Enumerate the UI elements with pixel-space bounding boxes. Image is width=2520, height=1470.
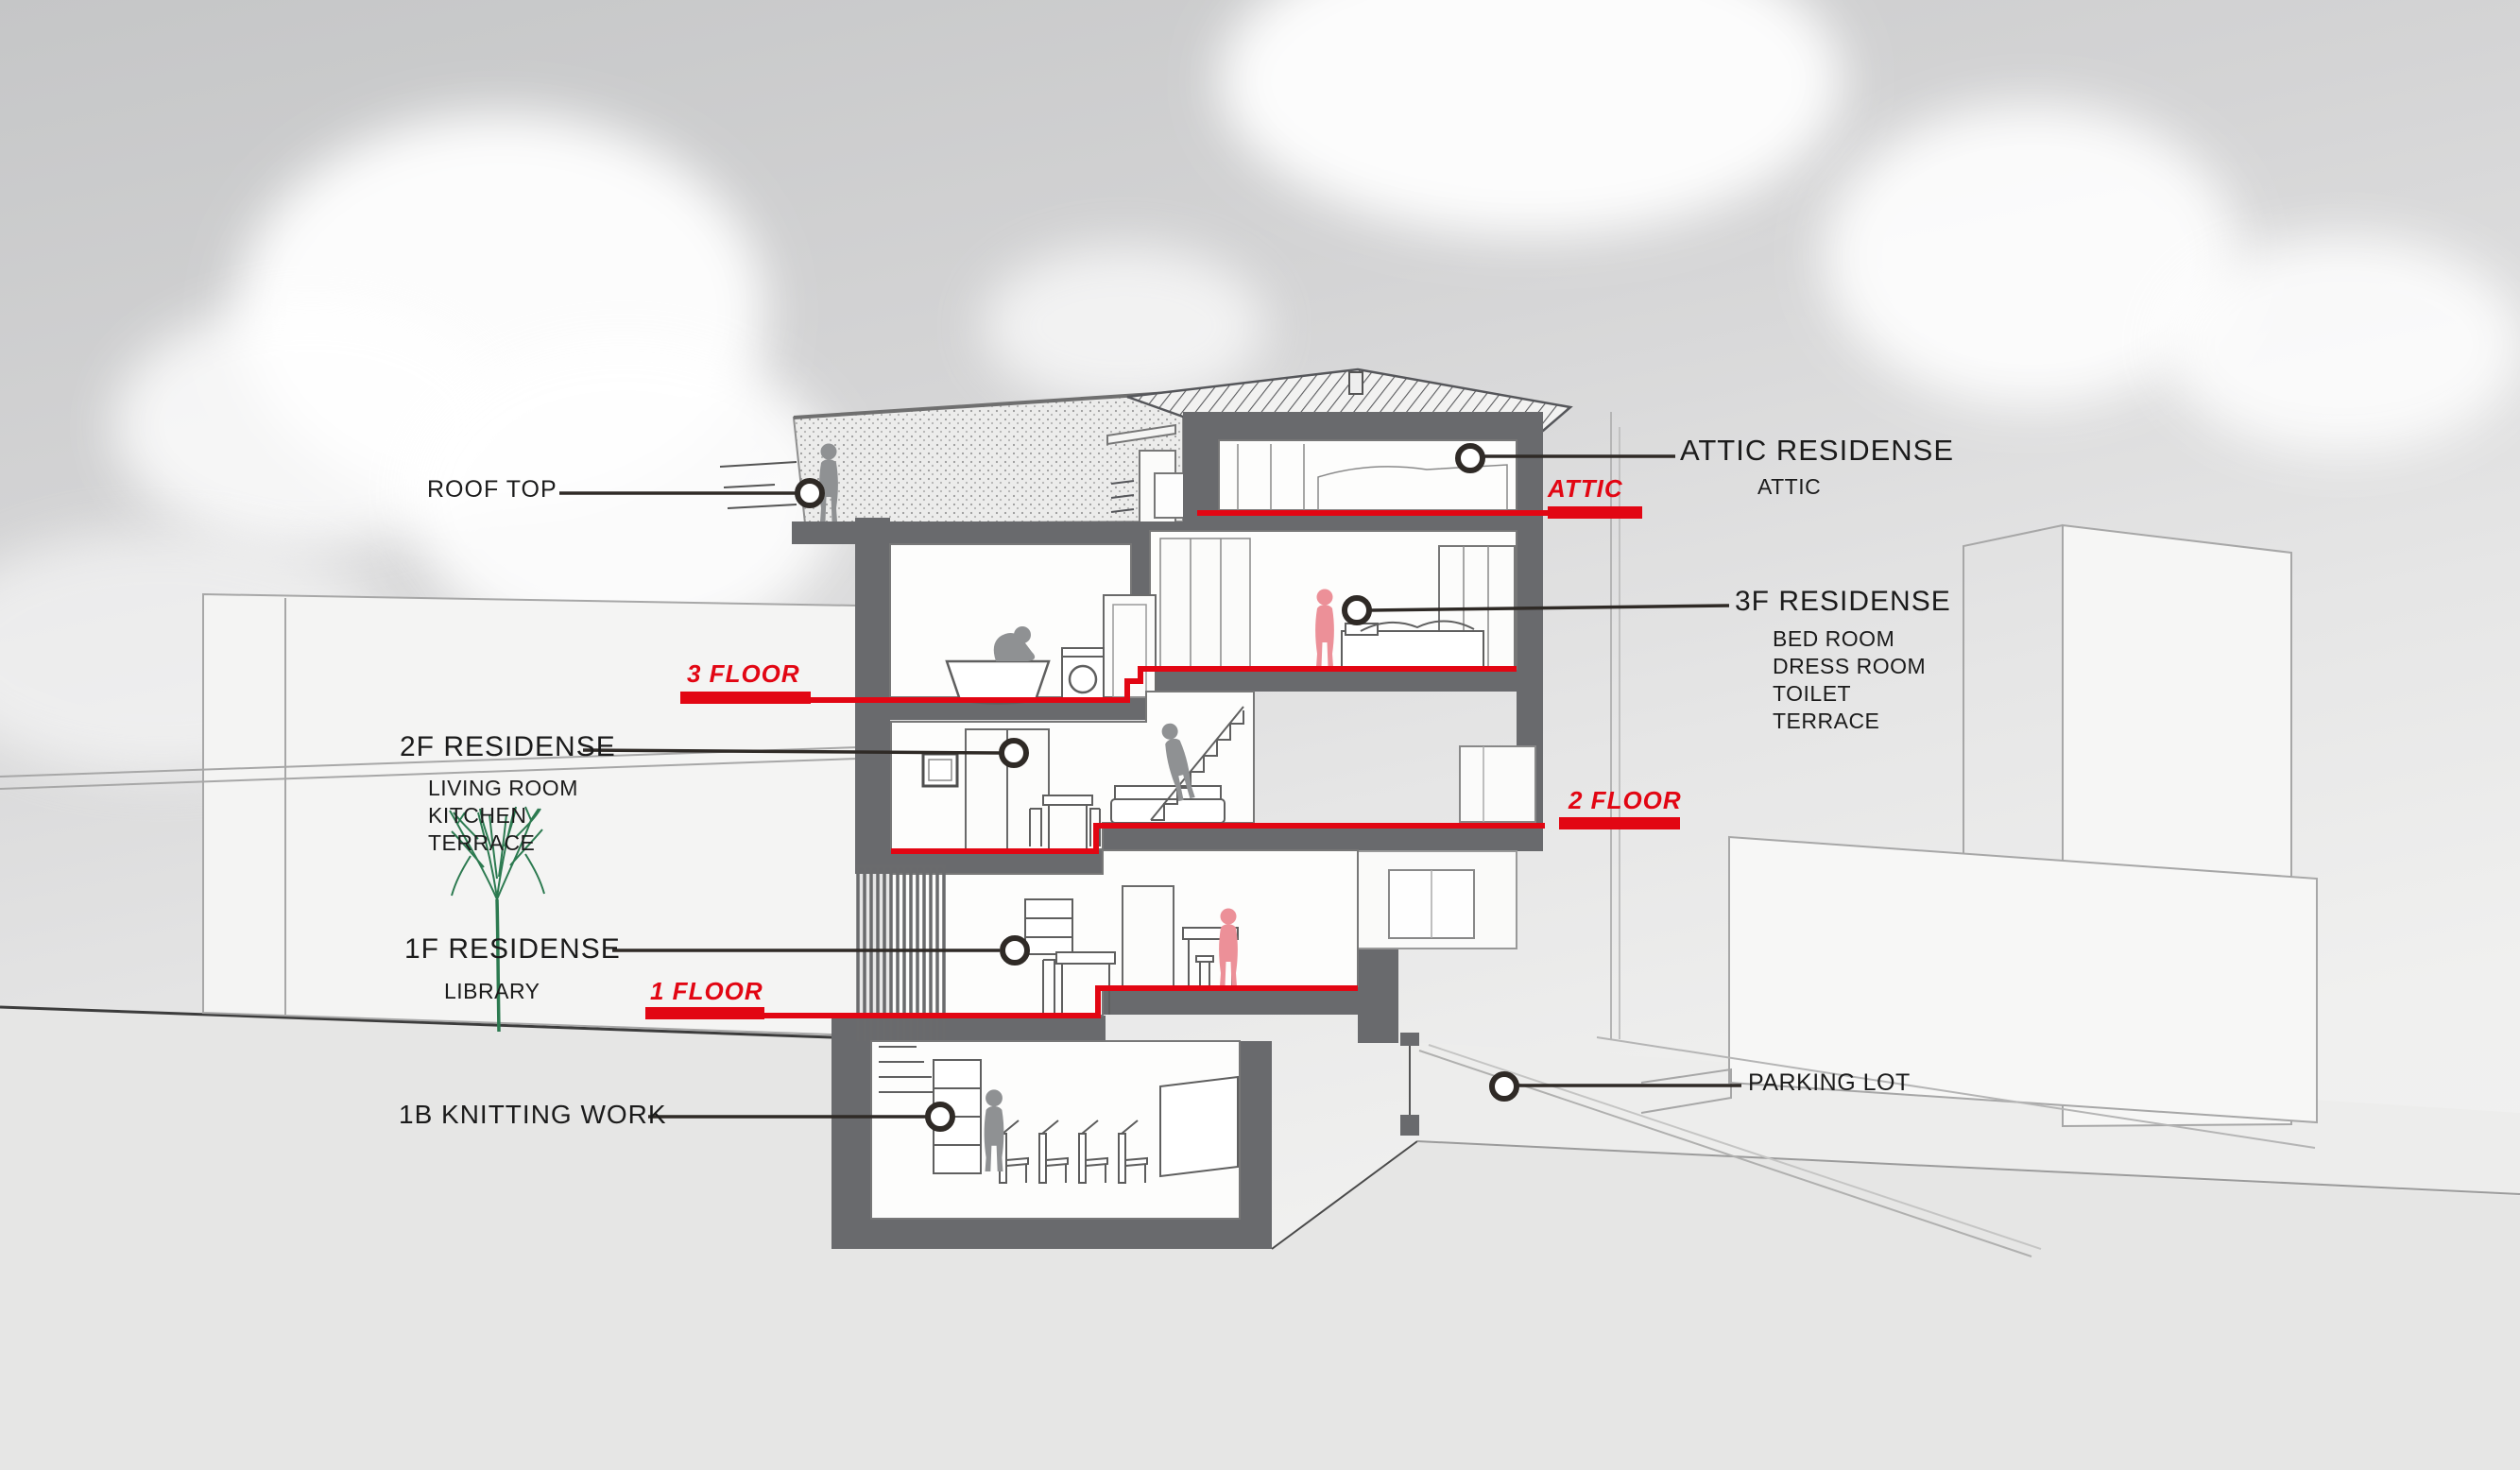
label-3-floor: 3 FLOOR	[687, 659, 800, 689]
bedroom-3f	[1150, 531, 1517, 669]
bathroom-3f	[890, 544, 1156, 704]
room-item: TERRACE	[428, 829, 578, 857]
terrace-balustrade	[1460, 746, 1535, 822]
label-2-floor: 2 FLOOR	[1569, 786, 1682, 815]
label-1b-knitting-work: 1B KNITTING WORK	[399, 1100, 667, 1130]
counter	[1160, 1077, 1238, 1176]
label-2f-rooms: LIVING ROOM KITCHEN TERRACE	[428, 775, 578, 857]
label-1f-rooms: LIBRARY	[444, 979, 540, 1004]
room-item: TOILET	[1773, 680, 1926, 708]
architectural-section-diagram: ROOF TOP ATTIC RESIDENSE ATTIC ATTIC 3 F…	[0, 0, 2520, 1470]
label-attic-residense: ATTIC RESIDENSE	[1680, 434, 1954, 468]
roof-vent	[1349, 372, 1363, 394]
room-item: DRESS ROOM	[1773, 653, 1926, 680]
section-drawing	[0, 0, 2520, 1470]
label-roof-top: ROOF TOP	[427, 476, 557, 504]
washing-machine	[1062, 648, 1104, 700]
rooftop-parapet-wall	[794, 392, 1183, 523]
bookshelf	[1025, 899, 1072, 954]
label-1-floor: 1 FLOOR	[650, 977, 763, 1006]
library-door	[1123, 886, 1174, 986]
label-1f-residense: 1F RESIDENSE	[404, 933, 621, 966]
label-2f-residense: 2F RESIDENSE	[400, 731, 616, 763]
room-item: BED ROOM	[1773, 625, 1926, 653]
label-attic-room: ATTIC	[1757, 474, 1821, 500]
label-parking-lot: PARKING LOT	[1748, 1069, 1911, 1097]
label-3f-rooms: BED ROOM DRESS ROOM TOILET TERRACE	[1773, 625, 1926, 735]
room-item: TERRACE	[1773, 708, 1926, 735]
leader-roof-top	[559, 481, 822, 505]
basement-workshop	[871, 1041, 1240, 1219]
label-3f-residense: 3F RESIDENSE	[1735, 586, 1951, 618]
room-item: KITCHEN	[428, 802, 578, 829]
label-attic-level: ATTIC	[1548, 474, 1623, 504]
room-item: LIVING ROOM	[428, 775, 578, 802]
bathtub	[947, 661, 1049, 704]
